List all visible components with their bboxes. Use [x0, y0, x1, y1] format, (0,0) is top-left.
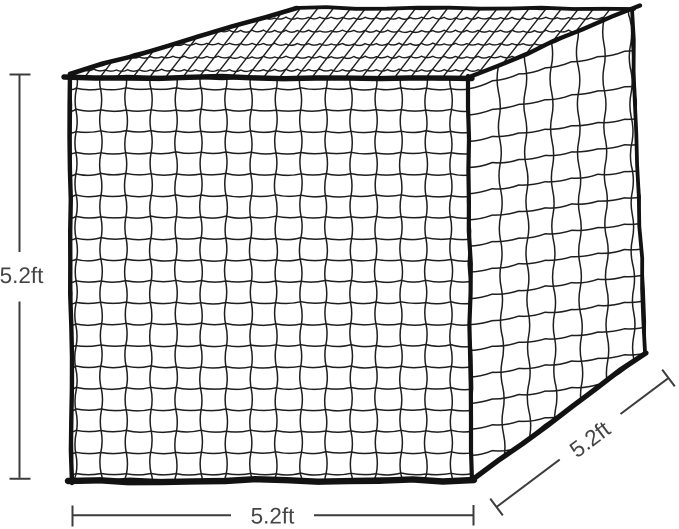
svg-text:5.2ft: 5.2ft	[251, 504, 296, 529]
svg-text:5.2ft: 5.2ft	[0, 263, 44, 288]
